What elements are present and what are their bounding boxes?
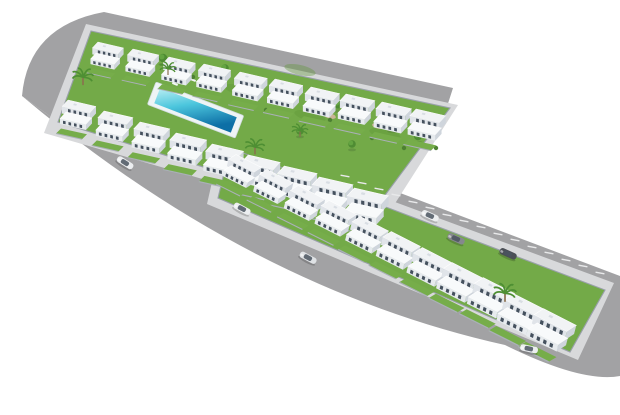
garden-bush: [402, 146, 406, 150]
garden-tree: [348, 140, 356, 151]
garden-bush: [328, 118, 332, 122]
site-plan-render: [0, 0, 620, 415]
aerial-render-canvas: [0, 0, 620, 415]
